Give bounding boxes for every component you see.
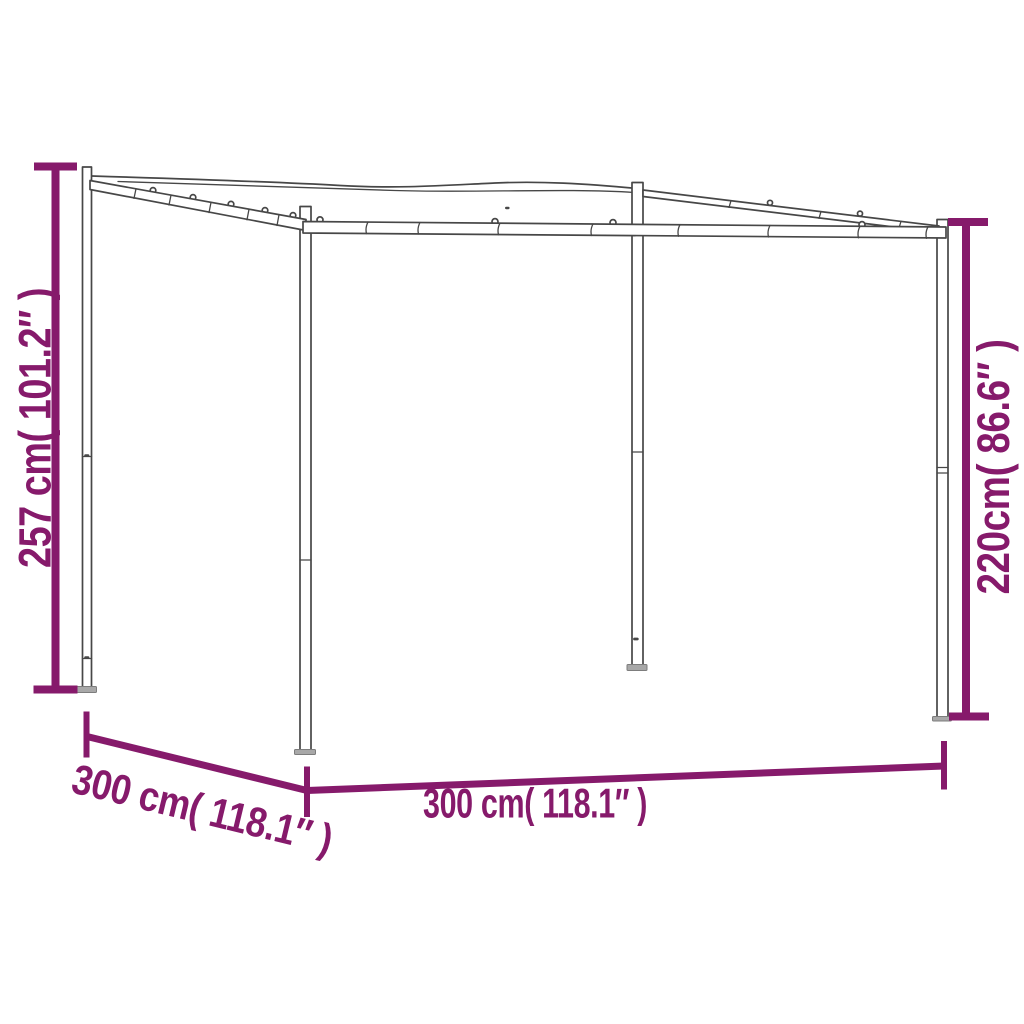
roof-left-rail-roll	[90, 181, 306, 231]
gazebo-dimension-diagram: 257 cm( 101.2″ ) 220cm( 86.6″ ) 300 cm( …	[0, 0, 1024, 1024]
dimension-labels: 257 cm( 101.2″ ) 220cm( 86.6″ ) 300 cm( …	[10, 288, 1020, 863]
base-rear-right	[627, 665, 647, 671]
post-rear-right	[632, 183, 643, 668]
left-height-label: 257 cm( 101.2″ )	[10, 288, 61, 568]
base-front-left	[295, 750, 316, 755]
canopy-rear-edge	[92, 176, 637, 193]
right-height-label: 220cm( 86.6″ )	[968, 340, 1019, 595]
dimension-lines	[34, 167, 990, 818]
post-front-right	[937, 220, 948, 720]
product-diagram-canvas: 257 cm( 101.2″ ) 220cm( 86.6″ ) 300 cm( …	[0, 0, 1024, 1024]
depth-label: 300 cm( 118.1″ )	[68, 755, 338, 863]
gazebo-drawing	[83, 167, 949, 753]
width-label: 300 cm( 118.1″ )	[423, 780, 647, 827]
post-rear-left	[83, 167, 92, 689]
post-bases	[77, 665, 952, 755]
base-rear-left	[77, 687, 97, 693]
base-front-right	[933, 717, 952, 722]
post-front-left	[300, 207, 311, 753]
